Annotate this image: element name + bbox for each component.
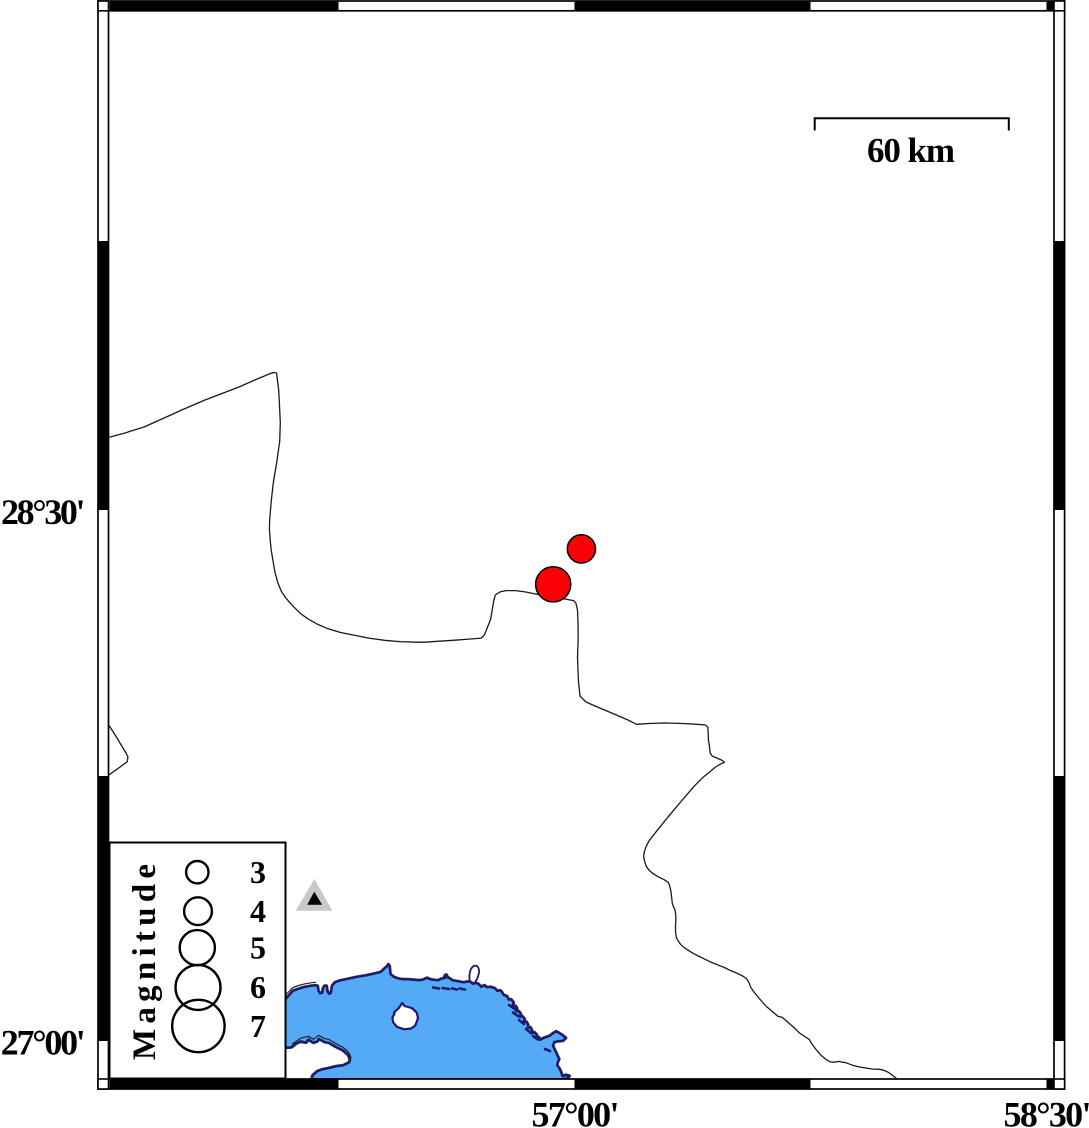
svg-text:Magnitude: Magnitude bbox=[127, 864, 163, 1060]
svg-text:7: 7 bbox=[250, 1008, 266, 1044]
svg-text:3: 3 bbox=[250, 854, 266, 890]
svg-text:28°30': 28°30' bbox=[1, 492, 86, 532]
svg-text:5: 5 bbox=[250, 930, 266, 966]
svg-text:57°00': 57°00' bbox=[532, 1095, 620, 1128]
svg-text:4: 4 bbox=[250, 893, 266, 929]
svg-text:27°00': 27°00' bbox=[1, 1022, 86, 1062]
svg-text:6: 6 bbox=[250, 969, 266, 1005]
svg-text:58°30': 58°30' bbox=[1004, 1095, 1089, 1128]
svg-text:60 km: 60 km bbox=[867, 131, 955, 170]
